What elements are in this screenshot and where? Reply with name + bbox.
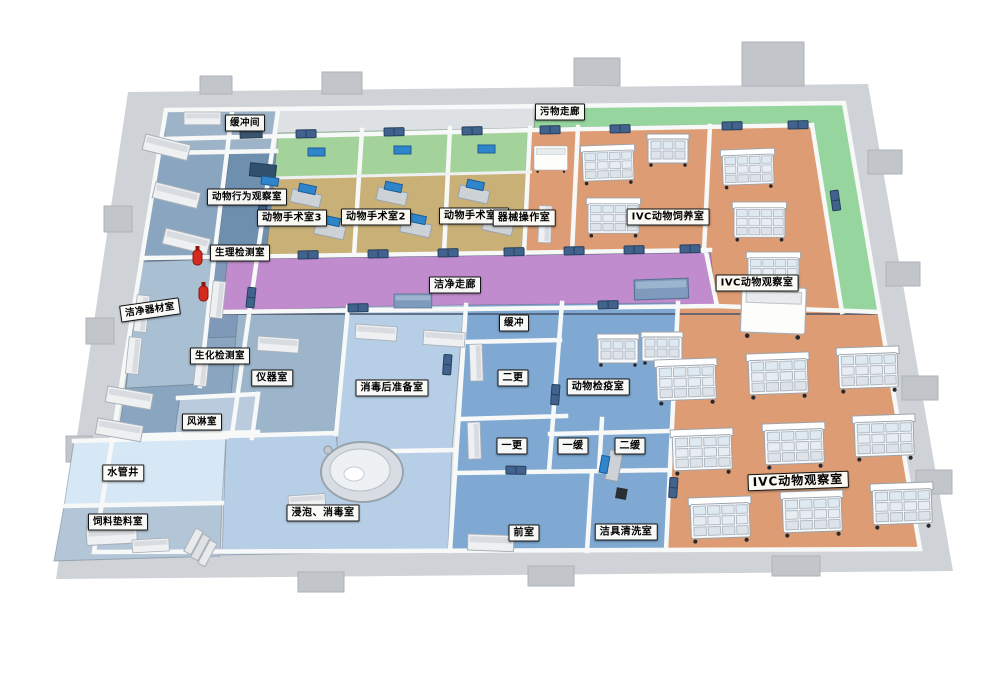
- door: [551, 384, 560, 405]
- floor-water-shaft: [64, 437, 226, 506]
- room-label-first-change: 一更: [497, 438, 528, 455]
- door: [624, 246, 644, 254]
- cage-rack: [762, 422, 826, 470]
- door: [788, 121, 808, 129]
- room-label-antechamber: 前室: [509, 525, 540, 542]
- room-label-second-change: 二更: [498, 370, 529, 387]
- room-label-clean-corridor: 洁净走廊: [429, 277, 481, 294]
- room-label-instrument-operation: 器械操作室: [493, 210, 556, 227]
- corridor-cabinet: [394, 294, 432, 308]
- door: [610, 125, 630, 133]
- monitor-screen: [478, 145, 495, 153]
- lab-bench: [423, 330, 465, 347]
- door: [296, 130, 316, 138]
- facility-3d-floorplan: 缓冲间 污物走廊 动物行为观察室 动物手术室3 动物手术室2 动物手术室1 器械…: [0, 0, 1000, 694]
- cage-rack: [688, 496, 752, 544]
- monitor-screen: [308, 148, 325, 156]
- door: [462, 127, 482, 135]
- room-label-surgery-2: 动物手术室2: [341, 209, 411, 226]
- room-label-buffer-top: 缓冲间: [225, 115, 265, 132]
- room-label-ivc-observation-2: IVC动物观察室: [747, 471, 848, 491]
- cage-rack: [720, 148, 775, 189]
- locker-bench: [469, 344, 483, 381]
- room-label-soak-disinfection: 浸泡、消毒室: [287, 505, 360, 522]
- room-label-instrument-room: 仪器室: [251, 370, 293, 387]
- lab-bench: [257, 336, 299, 353]
- cage-rack: [647, 134, 689, 167]
- floorplan-rendering: [0, 0, 1000, 694]
- door: [368, 250, 388, 258]
- cage-rack: [780, 490, 844, 538]
- cage-rack: [870, 482, 934, 530]
- room-label-water-shaft: 水管井: [102, 465, 144, 482]
- door: [438, 249, 458, 257]
- door: [669, 477, 678, 498]
- room-label-ivc-breeding: IVC动物饲养室: [627, 209, 710, 226]
- door: [246, 287, 256, 308]
- door: [540, 126, 560, 134]
- lab-bench: [184, 112, 221, 125]
- room-label-post-disinfection-prep: 消毒后准备室: [356, 380, 429, 397]
- door: [384, 128, 404, 136]
- door: [298, 251, 318, 259]
- room-label-second-buffer: 二缓: [615, 438, 646, 455]
- room-label-waste-corridor: 污物走廊: [535, 104, 585, 121]
- lab-bench: [355, 324, 397, 341]
- room-label-first-buffer: 一缓: [558, 438, 589, 455]
- room-label-animal-quarantine: 动物检疫室: [567, 379, 630, 396]
- room-label-biochem-test: 生化检测室: [190, 348, 250, 365]
- room-label-air-shower: 风淋室: [182, 414, 222, 431]
- door: [722, 122, 742, 130]
- cage-rack: [580, 144, 635, 185]
- door: [506, 466, 526, 474]
- door: [680, 245, 700, 253]
- door: [348, 304, 368, 312]
- corridor-cabinet: [634, 278, 689, 300]
- chair: [615, 487, 628, 500]
- room-label-ivc-observation-1: IVC动物观察室: [716, 275, 799, 292]
- room-label-surgery-3: 动物手术室3: [257, 210, 327, 227]
- change-station: [740, 286, 806, 340]
- monitor-screen: [394, 146, 411, 154]
- cage-rack: [597, 334, 639, 367]
- cage-rack: [654, 358, 718, 406]
- room-label-behavior-observation: 动物行为观察室: [207, 189, 287, 206]
- door: [504, 248, 524, 256]
- cage-rack: [670, 428, 734, 476]
- door: [598, 301, 618, 309]
- room-label-cleaning-tools: 洁具清洗室: [595, 524, 658, 541]
- locker-bench: [467, 534, 514, 552]
- room-label-feed-bedding: 饲料垫料室: [88, 514, 148, 531]
- storage-cabinet: [132, 538, 169, 553]
- cage-rack: [836, 346, 900, 394]
- door: [564, 247, 584, 255]
- room-label-buffer-small: 缓冲: [499, 315, 529, 332]
- cage-rack: [852, 414, 916, 462]
- door: [443, 354, 452, 375]
- room-label-physiology-test: 生理检测室: [210, 245, 270, 262]
- cage-rack: [746, 352, 810, 400]
- monitor-screen: [261, 176, 279, 186]
- cage-rack: [732, 202, 786, 242]
- equipment-cabinet: [534, 146, 568, 173]
- disinfection-pool: [321, 442, 403, 502]
- locker-bench: [467, 422, 481, 459]
